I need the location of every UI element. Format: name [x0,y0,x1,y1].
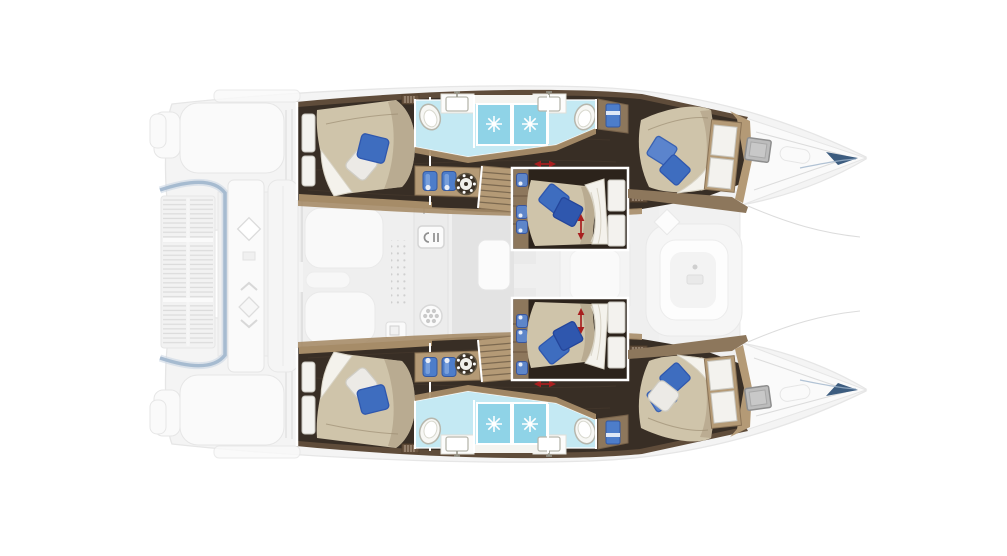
cockpit-strip [228,180,264,372]
stove-burners-icon [420,305,442,327]
stairs-icon [478,166,516,212]
shelf-basin [517,221,528,234]
galley-appliance-inner [390,326,399,335]
shower-drain-icon [522,116,538,132]
shelf-basin [517,206,528,219]
aft-deck-ghost [180,103,284,173]
slat-crossbar [163,238,213,242]
towel-icon [606,104,620,127]
floor-plan-canvas: Catamaran 6-cabin deck plan [0,0,1007,556]
fwd-cockpit-detail [693,265,698,270]
wardrobe-door [608,215,625,246]
galley-mat-dots [391,240,409,306]
slat-crossbar [163,298,213,302]
shower-wall-band [474,95,548,104]
saloon-table [478,240,510,290]
swim-platform-slats [163,198,186,346]
mid-cabin: Midship double cabin with convertible be… [512,168,628,250]
catamaran-floor-plan: Catamaran 6-cabin deck plan [0,0,1007,556]
saloon-sofa [305,208,383,268]
swim-platform-slats [190,198,213,346]
washing-machine-icon [456,174,477,195]
saloon-bolster [306,272,350,288]
fwd-cockpit-detail [687,275,703,284]
wardrobe-door [711,125,737,157]
galley-sink-icon [418,226,444,248]
trampoline-edge-line [748,206,860,237]
shower-drain-icon [486,116,502,132]
wardrobe-door [708,158,734,189]
deck-hatch-icon [745,137,772,162]
headboard-panel [302,114,315,152]
shelf-basin [517,174,528,187]
targa-bar-ghost [214,90,300,102]
nav-console-inner [570,250,620,300]
headboard-panel [302,156,315,186]
forward-cockpit: Forward cockpit lounge [646,209,742,336]
cockpit-locker [243,252,255,260]
stern-ghost [150,114,166,148]
storage-jugs-icon [442,172,456,191]
swim-platform: Swim platform with teak slats [160,182,225,365]
slat-gap [187,198,190,346]
wardrobe-door [608,180,625,211]
towel-fold [606,111,620,115]
saloon-chaise [305,292,375,344]
storage-jugs-icon [423,172,437,191]
